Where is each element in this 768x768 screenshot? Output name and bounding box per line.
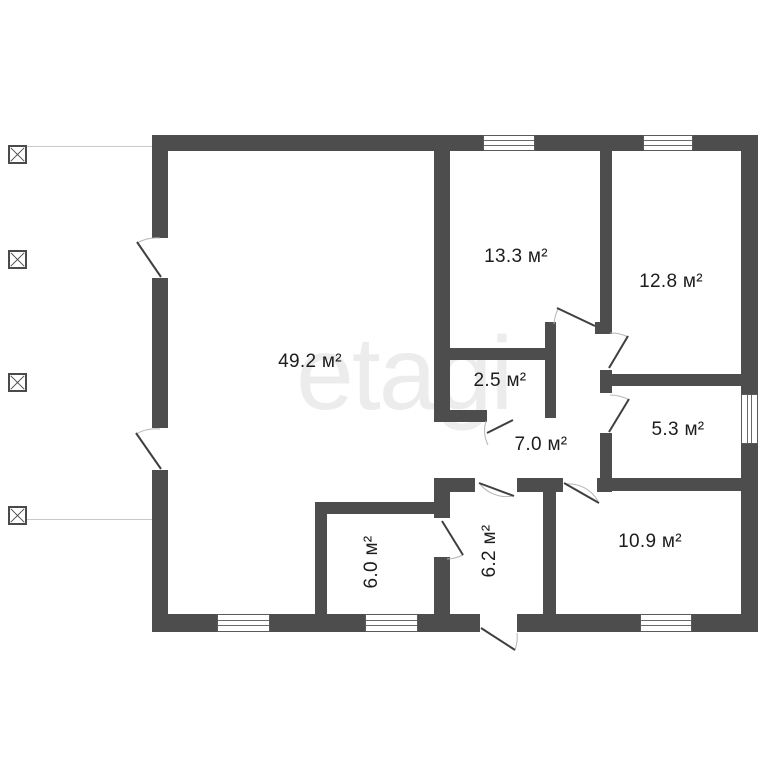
door-leaf-entrance (481, 628, 515, 650)
room-label-10-9: 10.9 м² (618, 531, 682, 553)
wall-exterior-left (152, 278, 168, 428)
room-label-6-0: 6.0 м² (361, 536, 383, 589)
wall-living-vs-middle (434, 151, 450, 422)
wall-6-0-vs-6-2 (434, 557, 450, 614)
room-label-2-5: 2.5 м² (474, 370, 527, 392)
wall-exterior-bottom (418, 614, 480, 632)
porch-column (8, 506, 27, 525)
window (741, 394, 758, 444)
door-arc (610, 395, 629, 400)
door-leaf-5-3 (609, 399, 629, 432)
door-leaf-porch-1 (137, 242, 161, 277)
window (643, 135, 693, 151)
door-leaf-6-0 (442, 521, 463, 555)
room-label-13-3: 13.3 м² (484, 246, 548, 268)
wall-13-3-vs-hall (545, 322, 553, 334)
door-leaf-12-8 (609, 336, 628, 368)
door-arc (565, 484, 598, 501)
porch-edge-line (27, 519, 152, 520)
wall-exterior-bottom (270, 614, 365, 632)
wall-6-2-vs-10-9 (543, 478, 556, 614)
room-label-7-0: 7.0 м² (515, 434, 568, 456)
wall-exterior-bottom (517, 614, 640, 632)
wall-closet-vs-hall-bottom (434, 410, 487, 422)
wall-exterior-right (741, 444, 758, 632)
room-label-5-3: 5.3 м² (652, 419, 705, 441)
door-arc (610, 333, 628, 337)
window (365, 614, 418, 632)
wall-exterior-top (152, 135, 483, 151)
wall-13-3-vs-hall (595, 322, 612, 334)
door-arc (136, 429, 160, 434)
column-x-icon (10, 508, 25, 523)
wall-13-3-vs-closet (434, 348, 556, 360)
column-x-icon (10, 252, 25, 267)
door-arc (480, 484, 513, 497)
room-label-6-2: 6.2 м² (479, 525, 501, 578)
room-label-49-2: 49.2 м² (278, 351, 342, 373)
wall-hall-bottom (597, 478, 612, 492)
wall-hall-bottom (517, 478, 563, 492)
porch-edge-line (27, 146, 152, 147)
porch-column (8, 373, 27, 392)
window (483, 135, 535, 151)
door-leaf-6-2 (479, 483, 514, 496)
wall-exterior-left (152, 470, 168, 632)
room-label-12-8: 12.8 м² (639, 271, 703, 293)
porch-column (8, 250, 27, 269)
floor-plan: etagi (0, 0, 768, 768)
porch-column (8, 145, 27, 164)
wall-closet-vs-hall (545, 322, 556, 418)
wall-6-0-top (315, 502, 438, 514)
column-x-icon (10, 375, 25, 390)
wall-hall-vs-right-rooms (600, 370, 612, 393)
wall-exterior-bottom (152, 614, 217, 632)
wall-exterior-right (741, 135, 758, 394)
wall-exterior-top (535, 135, 643, 151)
door-arc (137, 238, 160, 243)
door-leaf-porch-2 (136, 433, 161, 469)
door-arc (515, 633, 517, 650)
wall-hall-bottom (434, 478, 475, 492)
wall-exterior-bottom (692, 614, 758, 632)
wall-5-3-vs-10-9 (612, 478, 741, 491)
wall-living-vs-6-0 (315, 502, 327, 614)
wall-exterior-left (152, 135, 168, 238)
wall-12-8-vs-5-3 (612, 374, 741, 386)
door-leaf-10-9 (564, 483, 599, 503)
wall-13-3-vs-12-8 (600, 151, 612, 333)
window (217, 614, 270, 632)
door-leaf-13-3 (557, 308, 595, 326)
column-x-icon (10, 147, 25, 162)
window (640, 614, 692, 632)
